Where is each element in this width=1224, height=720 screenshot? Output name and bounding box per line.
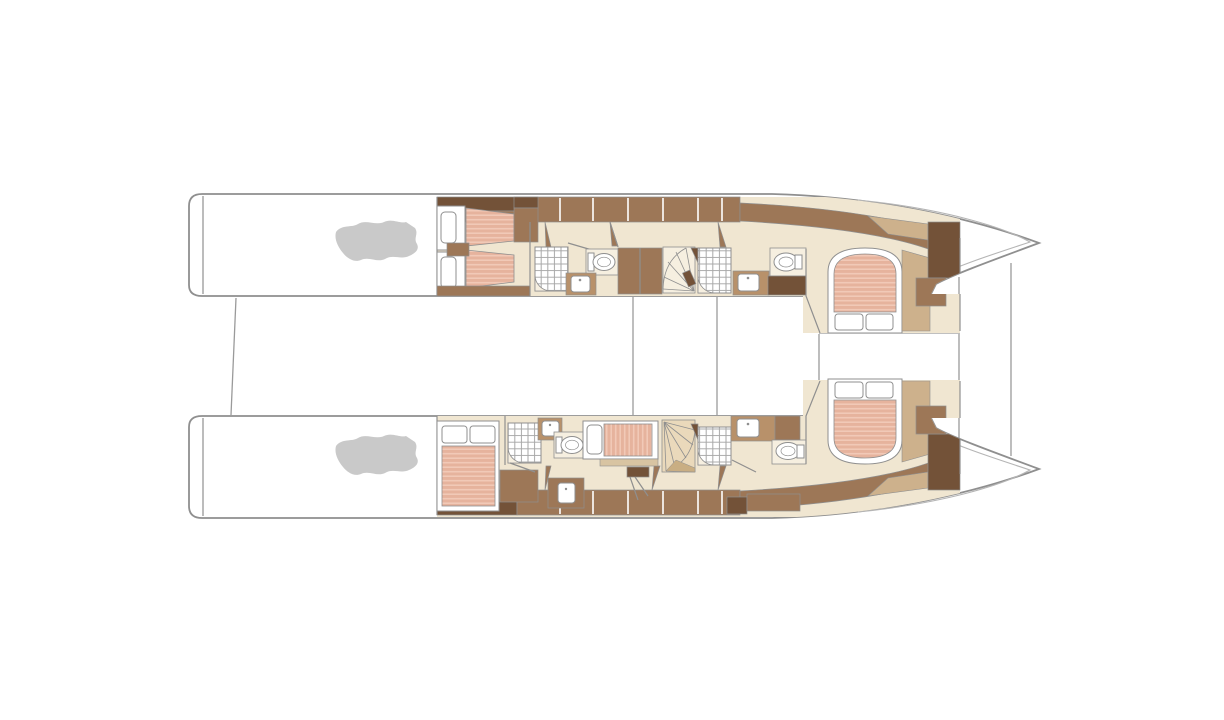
cabinet-block [514, 197, 538, 208]
shower-icon [508, 423, 541, 463]
wardrobe [514, 208, 538, 242]
single-bed-mattress [604, 424, 652, 456]
cabinet-block [768, 276, 806, 295]
sink-icon [737, 419, 759, 437]
aft-platform-edge [231, 298, 236, 415]
cabinet-block [775, 416, 800, 440]
sink-icon [571, 276, 590, 292]
cabinet-block [727, 497, 747, 514]
faucet-dot [747, 423, 750, 426]
catamaran-floor-plan: Deck plan of a catamaran lower deck: two… [0, 0, 1224, 720]
pillow [835, 314, 863, 330]
pillow [441, 257, 456, 288]
port-hull [189, 194, 1039, 333]
pillow [470, 426, 495, 443]
wardrobe [928, 222, 960, 278]
faucet-dot [549, 424, 551, 426]
pillow [442, 426, 467, 443]
toilet-seat [795, 255, 802, 269]
faucet-dot [565, 488, 567, 490]
engine-icon [335, 435, 417, 475]
single-bed-mattress [466, 250, 514, 288]
double-bed-mattress [834, 400, 896, 458]
toilet-icon [593, 254, 615, 271]
single-bed-mattress [466, 208, 514, 246]
pillow [866, 382, 893, 398]
deck-plan-canvas: Deck plan of a catamaran lower deck: two… [0, 0, 1224, 720]
shelf [600, 459, 658, 466]
cabinet-block [500, 470, 538, 502]
faucet-dot [579, 279, 582, 282]
starboard-engine-room [335, 435, 417, 475]
faucet-dot [747, 277, 750, 280]
sink-icon [738, 274, 759, 291]
double-bed-mattress [834, 254, 896, 312]
nightstand [447, 243, 469, 256]
sink-icon [558, 483, 575, 503]
shower-icon [698, 427, 731, 465]
shower-icon [535, 247, 568, 291]
engine-icon [335, 221, 417, 261]
toilet-icon [774, 253, 798, 271]
foredeck-passage [819, 333, 958, 381]
toilet-icon [561, 437, 583, 454]
port-engine-room [335, 221, 417, 261]
cabinet-block [437, 286, 530, 296]
pillow [866, 314, 893, 330]
pillow [587, 425, 602, 454]
cabinet-block [747, 494, 800, 511]
toilet-seat [797, 445, 804, 458]
double-bed-mattress [442, 446, 495, 506]
pillow [441, 212, 456, 243]
shower-icon [698, 248, 731, 293]
toilet-icon [776, 443, 800, 460]
pillow [835, 382, 863, 398]
wardrobe [928, 434, 960, 490]
desk [627, 467, 649, 477]
starboard-hull [189, 379, 1039, 518]
